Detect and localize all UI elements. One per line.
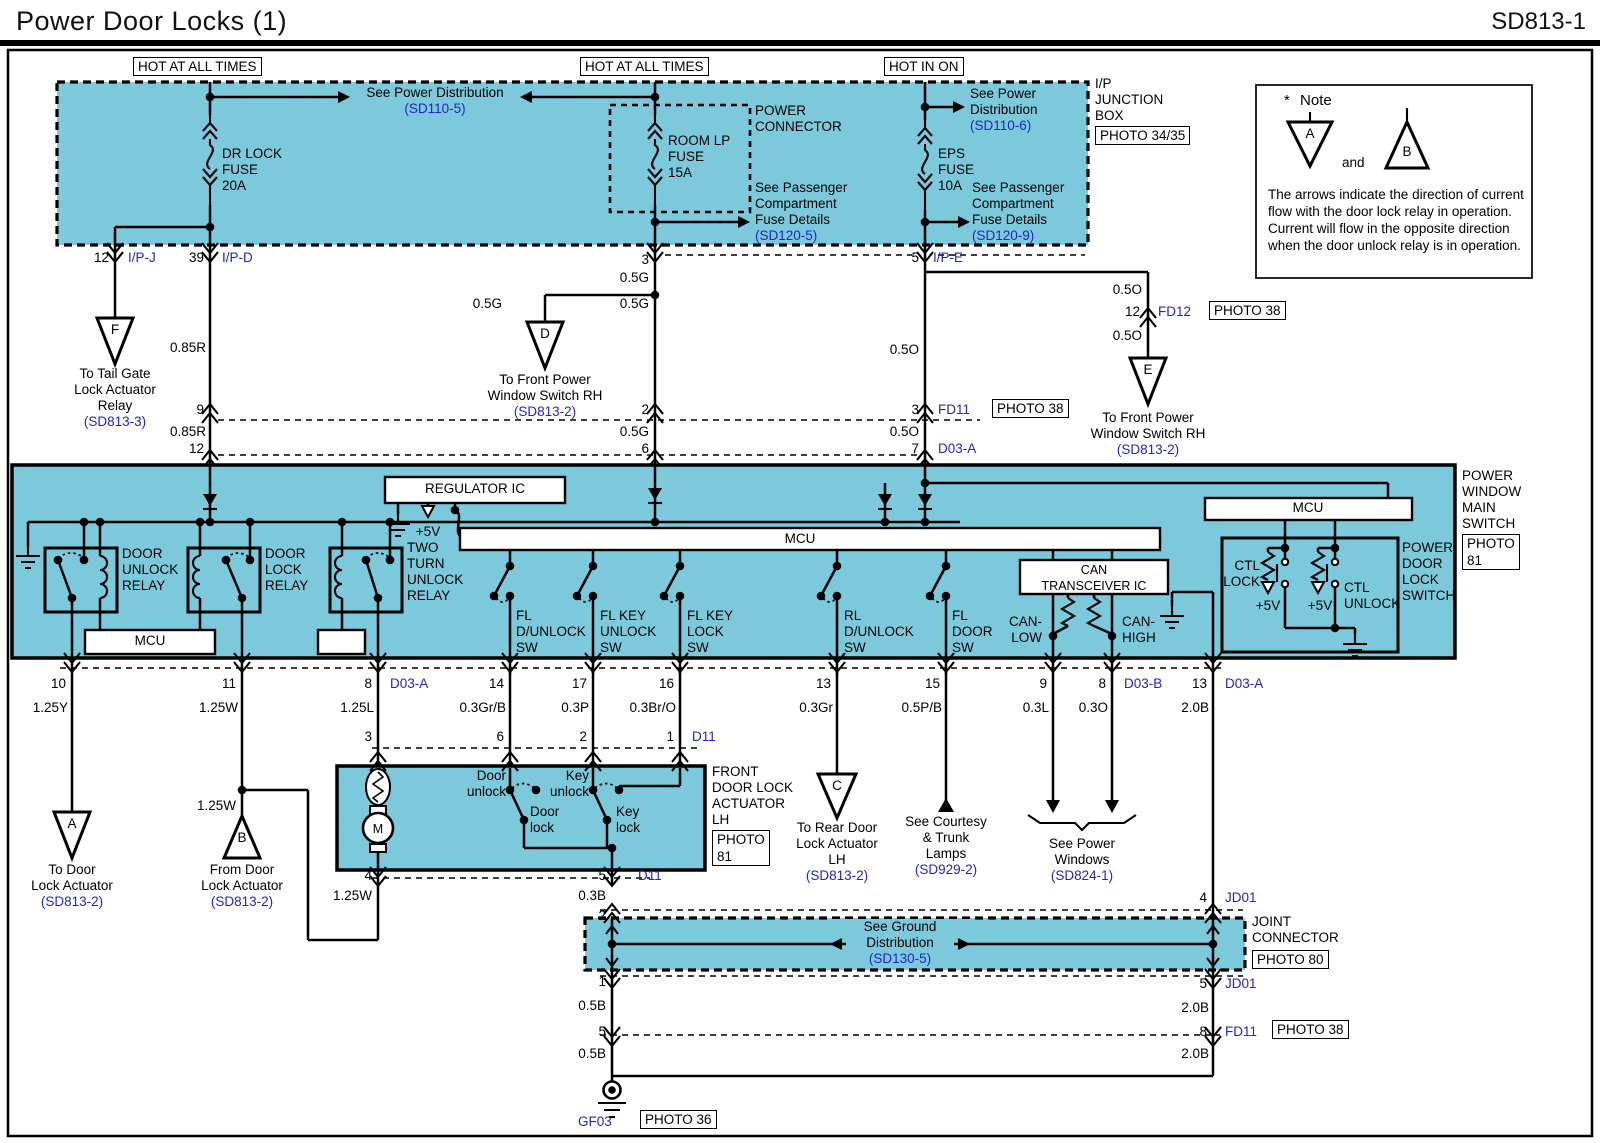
pin-number: 6 (623, 441, 649, 457)
label-line: I/P (1095, 76, 1163, 92)
fuse-word: FUSE (668, 149, 730, 165)
eps-fuse-label: EPS FUSE 10A (938, 146, 974, 194)
label-line: RELAY (407, 588, 463, 604)
motor-letter: M (366, 821, 390, 837)
power-door-lock-switch-label: POWER DOOR LOCK SWITCH (1402, 540, 1455, 604)
pin-number: 3 (893, 402, 919, 418)
wire-label: 1.25Y (16, 700, 68, 716)
ground-id: GF03 (578, 1114, 612, 1130)
connector-id: D03-B (1124, 676, 1162, 692)
connector-id: FD11 (938, 402, 970, 418)
label-line: DOOR (1402, 556, 1455, 572)
wire-label: 0.5G (597, 424, 649, 440)
ref-link[interactable]: (SD824-1) (1012, 868, 1152, 884)
ref-text: Windows (1012, 852, 1152, 868)
pin-number: 2 (561, 729, 587, 745)
mcu-label: MCU (760, 531, 840, 547)
label-line: LOCK (1220, 574, 1260, 590)
photo-34-35-ref[interactable]: PHOTO 34/35 (1095, 126, 1190, 145)
label-line: TURN (407, 556, 463, 572)
label-line: SW (687, 640, 733, 656)
label-line: LOW (998, 630, 1042, 646)
pin-number: 2 (580, 908, 606, 924)
ref-text: See Power Distribution (350, 85, 520, 101)
label-line: TRANSCEIVER IC (1024, 578, 1164, 594)
hot-in-on-banner: HOT IN ON (884, 57, 964, 76)
ref-passenger-fuse-1: See Passenger Compartment Fuse Details (… (755, 180, 847, 244)
label-line: unlock (525, 784, 589, 800)
sw-flkey-lock-label: FL KEY LOCK SW (687, 608, 733, 656)
fuse-name: DR LOCK (222, 146, 282, 162)
label-line: Door (530, 804, 559, 820)
wire-label: 0.5O (867, 424, 919, 440)
ref-link[interactable]: (SD120-9) (972, 228, 1064, 244)
label-line: FL (516, 608, 586, 624)
pin-number: 11 (210, 676, 236, 692)
ref-power-distribution-2: See Power Distribution (SD110-6) (970, 86, 1038, 134)
label-line: DOOR LOCK (712, 780, 793, 796)
wire-label: 2.0B (1157, 1046, 1209, 1062)
wire-label: 0.3P (537, 700, 589, 716)
fuse-rating: 15A (668, 165, 730, 181)
connector-id: D03-A (938, 441, 976, 457)
ref-text: See Courtesy (876, 814, 1016, 830)
pin-number: 1 (648, 729, 674, 745)
label-line: 81 (717, 848, 765, 865)
ref-link[interactable]: (SD110-6) (970, 118, 1038, 134)
wire-label: 0.5B (554, 1046, 606, 1062)
wire-label: 1.25L (322, 700, 374, 716)
pin-number: 8 (1181, 1024, 1207, 1040)
label-line: LOCK (687, 624, 733, 640)
ref-text: See Power (1012, 836, 1152, 852)
label-line: unlock (442, 784, 506, 800)
wire-label: 2.0B (1157, 700, 1209, 716)
wiring-diagram-page: Power Door Locks (1) SD813-1 (0, 0, 1600, 1143)
wire-label: 0.5O (1090, 328, 1142, 344)
plus5v-label: +5V (1246, 598, 1290, 614)
power-window-main-switch-label: POWER WINDOW MAIN SWITCH (1462, 468, 1521, 532)
label-line: Key (525, 768, 589, 784)
ref-text: Compartment (972, 196, 1064, 212)
label-line: JOINT (1252, 914, 1339, 930)
ref-link[interactable]: (SD813-2) (172, 894, 312, 910)
hot-at-all-times-banner-1: HOT AT ALL TIMES (133, 57, 262, 76)
ref-power-windows: See Power Windows (SD824-1) (1012, 836, 1152, 884)
label-line: PHOTO (717, 831, 765, 848)
pin-number: 17 (561, 676, 587, 692)
ctl-lock-label: CTL LOCK (1220, 558, 1260, 590)
label-line: SWITCH (1402, 588, 1455, 604)
photo-38-ref[interactable]: PHOTO 38 (1272, 1020, 1349, 1039)
label-line: CTL (1220, 558, 1260, 574)
label-line: TWO (407, 540, 463, 556)
label-line: RELAY (122, 578, 178, 594)
label-line: WINDOW (1462, 484, 1521, 500)
pin-number: 8 (1080, 676, 1106, 692)
label-line: 81 (1467, 552, 1515, 569)
pin-number: 5 (893, 250, 919, 266)
sw-rl-dunlock-label: RL D/UNLOCK SW (844, 608, 914, 656)
wire-label: 1.25W (184, 798, 236, 814)
label-line: POWER (1462, 468, 1521, 484)
label-line: UNLOCK (407, 572, 463, 588)
ref-text: Fuse Details (755, 212, 847, 228)
triangle-letter: D (533, 326, 557, 342)
connector-id: I/P-J (128, 250, 156, 266)
wire-label: 1.25W (320, 888, 372, 904)
pin-number: 5 (580, 868, 606, 884)
wire-label: 0.5B (554, 998, 606, 1014)
connector-id: I/P-D (222, 250, 253, 266)
sw-fl-dunlock-label: FL D/UNLOCK SW (516, 608, 586, 656)
wire-label: 0.85R (154, 340, 206, 356)
label-line: FL (952, 608, 993, 624)
label-line: DOOR (122, 546, 178, 562)
label-line: CTL (1344, 580, 1400, 596)
ref-front-power-window-d: To Front Power Window Switch RH (SD813-2… (475, 372, 615, 420)
label-line: FL KEY (687, 608, 733, 624)
pin-number: 7 (893, 441, 919, 457)
label-line: Key (616, 804, 640, 820)
ref-text: See Power (970, 86, 1038, 102)
plus5v-label: +5V (1298, 598, 1342, 614)
label-line: Door (442, 768, 506, 784)
ref-link[interactable]: (SD813-2) (1078, 442, 1218, 458)
ref-link[interactable]: (SD110-5) (350, 101, 520, 117)
ref-to-door-lock-actuator: To Door Lock Actuator (SD813-2) (2, 862, 142, 910)
pin-number: 6 (478, 729, 504, 745)
label-line: MAIN (1462, 500, 1521, 516)
label-line: PHOTO (1467, 535, 1515, 552)
photo-38-ref[interactable]: PHOTO 38 (1209, 301, 1286, 320)
can-transceiver-label: CAN TRANSCEIVER IC (1024, 562, 1164, 594)
ref-tailgate: To Tail Gate Lock Actuator Relay (SD813-… (45, 366, 185, 430)
door-lock-label: Door lock (530, 804, 559, 836)
label-line: SW (516, 640, 586, 656)
ref-text: See Passenger (755, 180, 847, 196)
wire-label: 2.0B (1157, 1000, 1209, 1016)
label-line: lock (530, 820, 559, 836)
ref-text: Lock Actuator (2, 878, 142, 894)
ref-text: Lock Actuator (45, 382, 185, 398)
ref-text: & Trunk (876, 830, 1016, 846)
pin-number: 9 (1021, 676, 1047, 692)
connector-id: JD01 (1225, 890, 1257, 906)
connector-id: FD11 (1225, 1024, 1257, 1040)
label-line: POWER (1402, 540, 1455, 556)
ref-text: Lock Actuator (172, 878, 312, 894)
power-connector-label: POWER CONNECTOR (755, 103, 842, 135)
hot-at-all-times-banner-2: HOT AT ALL TIMES (580, 57, 709, 76)
label-line: FL KEY (600, 608, 656, 624)
label-line: RL (844, 608, 914, 624)
ref-link[interactable]: (SD813-2) (475, 404, 615, 420)
triangle-letter: A (60, 816, 84, 832)
wire-label: 0.85R (154, 424, 206, 440)
label-line: LOCK (265, 562, 308, 578)
fuse-name: EPS (938, 146, 974, 162)
ip-junction-box-label: I/P JUNCTION BOX (1095, 76, 1163, 124)
note-triangle-b-letter: B (1395, 144, 1419, 160)
can-high-label: CAN- HIGH (1122, 614, 1156, 646)
two-turn-unlock-relay-label: TWO TURN UNLOCK RELAY (407, 540, 463, 604)
pin-number: 5 (1181, 976, 1207, 992)
label-line: HIGH (1122, 630, 1156, 646)
ref-link[interactable]: (SD813-2) (2, 894, 142, 910)
fuse-name: ROOM LP (668, 133, 730, 149)
label-line: D/UNLOCK (516, 624, 586, 640)
ref-power-distribution-1: See Power Distribution (SD110-5) (350, 85, 520, 117)
ref-text: Window Switch RH (475, 388, 615, 404)
pin-number: 4 (346, 868, 372, 884)
ref-text: To Front Power (1078, 410, 1218, 426)
label-line: CONNECTOR (1252, 930, 1339, 946)
sw-flkey-unlock-label: FL KEY UNLOCK SW (600, 608, 656, 656)
note-triangle-a-letter: A (1298, 126, 1322, 142)
mcu-label: MCU (1268, 500, 1348, 516)
connector-id: D11 (638, 868, 662, 884)
photo-81-ref[interactable]: PHOTO 81 (1462, 534, 1520, 570)
wire-label: 0.3Gr (777, 700, 833, 716)
key-unlock-label: Key unlock (525, 768, 589, 800)
label-line: UNLOCK (1344, 596, 1400, 612)
pin-number: 39 (178, 250, 204, 266)
ref-front-power-window-e: To Front Power Window Switch RH (SD813-2… (1078, 410, 1218, 458)
pin-number: 13 (805, 676, 831, 692)
connector-id: FD12 (1158, 304, 1191, 320)
wire-label: 0.5G (597, 296, 649, 312)
label-line: lock (616, 820, 640, 836)
pin-number: 10 (40, 676, 66, 692)
ref-text: From Door (172, 862, 312, 878)
ground-dist-line2: Distribution (846, 935, 954, 951)
ref-text: Compartment (755, 196, 847, 212)
label-line: SWITCH (1462, 516, 1521, 532)
label-line: RELAY (265, 578, 308, 594)
sw-fl-door-label: FL DOOR SW (952, 608, 993, 656)
photo-36-ref[interactable]: PHOTO 36 (640, 1110, 717, 1129)
label-line: D/UNLOCK (844, 624, 914, 640)
label-line: ACTUATOR (712, 796, 793, 812)
label-line: UNLOCK (600, 624, 656, 640)
wire-label: 1.25W (186, 700, 238, 716)
connector-id: D03-A (1225, 676, 1263, 692)
pin-number: 13 (1181, 676, 1207, 692)
fuse-rating: 20A (222, 178, 282, 194)
note-star: * (1284, 92, 1290, 109)
joint-connector-label: JOINT CONNECTOR (1252, 914, 1339, 946)
label-line: SW (844, 640, 914, 656)
label-line: UNLOCK (122, 562, 178, 578)
door-unlock-label: Door unlock (442, 768, 506, 800)
pin-number: 12 (1114, 304, 1140, 320)
wire-label: 0.5O (867, 342, 919, 358)
connector-id: JD01 (1225, 976, 1257, 992)
dr-lock-fuse-label: DR LOCK FUSE 20A (222, 146, 282, 194)
door-lock-relay-label: DOOR LOCK RELAY (265, 546, 308, 594)
pin-number: 16 (648, 676, 674, 692)
pin-number: 1 (580, 974, 606, 990)
regulator-ic-label: REGULATOR IC (387, 481, 563, 497)
connector-id: D03-A (390, 676, 428, 692)
ref-text: To Front Power (475, 372, 615, 388)
label-line: DOOR (952, 624, 993, 640)
door-unlock-relay-label: DOOR UNLOCK RELAY (122, 546, 178, 594)
fuse-word: FUSE (222, 162, 282, 178)
ref-link[interactable]: (SD929-2) (876, 862, 1016, 878)
ref-text: Distribution (970, 102, 1038, 118)
ref-text: Lamps (876, 846, 1016, 862)
ctl-unlock-label: CTL UNLOCK (1344, 580, 1400, 612)
wire-label: 0.3B (554, 888, 606, 904)
triangle-letter: C (825, 778, 849, 794)
pin-number: 14 (478, 676, 504, 692)
pin-number: 3 (346, 729, 372, 745)
wire-label: 0.3Gr/B (446, 700, 506, 716)
label-line: JUNCTION (1095, 92, 1163, 108)
label-line: CAN (1024, 562, 1164, 578)
triangle-letter: B (230, 830, 254, 846)
mcu-label: MCU (108, 633, 192, 649)
label-line: FRONT (712, 764, 793, 780)
ref-text: To Tail Gate (45, 366, 185, 382)
pin-number: 3 (623, 252, 649, 268)
ground-dist-link[interactable]: (SD130-5) (830, 951, 970, 967)
triangle-letter: E (1136, 362, 1160, 378)
wire-label: 0.5O (1090, 282, 1142, 298)
label-line: DOOR (265, 546, 308, 562)
label-layer: HOT AT ALL TIMES HOT AT ALL TIMES HOT IN… (0, 0, 1600, 1143)
front-door-lock-actuator-label: FRONT DOOR LOCK ACTUATOR LH (712, 764, 793, 828)
ref-text: Relay (45, 398, 185, 414)
ref-from-door-lock-actuator: From Door Lock Actuator (SD813-2) (172, 862, 312, 910)
fuse-rating: 10A (938, 178, 974, 194)
pin-number: 12 (178, 441, 204, 457)
wire-label: 0.5P/B (886, 700, 942, 716)
label-line: CONNECTOR (755, 119, 842, 135)
label-line: CAN- (1122, 614, 1156, 630)
pin-number: 2 (623, 402, 649, 418)
wire-label: 0.3L (997, 700, 1049, 716)
room-lp-fuse-label: ROOM LP FUSE 15A (668, 133, 730, 181)
ref-courtesy-trunk: See Courtesy & Trunk Lamps (SD929-2) (876, 814, 1016, 878)
note-word: Note (1300, 92, 1332, 109)
wire-label: 0.5G (462, 296, 502, 312)
triangle-letter: F (103, 322, 127, 338)
ref-text: Fuse Details (972, 212, 1064, 228)
ref-link[interactable]: (SD120-5) (755, 228, 847, 244)
ref-passenger-fuse-2: See Passenger Compartment Fuse Details (… (972, 180, 1064, 244)
fuse-word: FUSE (938, 162, 974, 178)
pin-number: 5 (580, 1024, 606, 1040)
photo-38-ref[interactable]: PHOTO 38 (992, 399, 1069, 418)
pin-number: 15 (914, 676, 940, 692)
connector-id: D11 (692, 729, 716, 745)
label-line: BOX (1095, 108, 1163, 124)
ground-dist-line1: See Ground (830, 919, 970, 935)
label-line: LOCK (1402, 572, 1455, 588)
connector-id: I/P-E (933, 250, 963, 266)
key-lock-label: Key lock (616, 804, 640, 836)
label-line: POWER (755, 103, 842, 119)
ref-text: Window Switch RH (1078, 426, 1218, 442)
wire-label: 0.5G (597, 270, 649, 286)
label-line: SW (952, 640, 993, 656)
ref-text: To Door (2, 862, 142, 878)
label-line: CAN- (998, 614, 1042, 630)
note-body: The arrows indicate the direction of cur… (1268, 186, 1526, 254)
ref-text: See Passenger (972, 180, 1064, 196)
can-low-label: CAN- LOW (998, 614, 1042, 646)
pin-number: 8 (346, 676, 372, 692)
note-and: and (1342, 155, 1365, 171)
photo-80-ref[interactable]: PHOTO 80 (1252, 950, 1329, 969)
wire-label: 0.3O (1056, 700, 1108, 716)
plus5v-label: +5V (406, 524, 450, 540)
pin-number: 12 (83, 250, 109, 266)
note-title: * Note (1284, 93, 1332, 109)
wire-label: 0.3Br/O (612, 700, 676, 716)
label-line: SW (600, 640, 656, 656)
pin-number: 4 (1181, 890, 1207, 906)
pin-number: 9 (178, 402, 204, 418)
photo-81-ref[interactable]: PHOTO 81 (712, 830, 770, 866)
